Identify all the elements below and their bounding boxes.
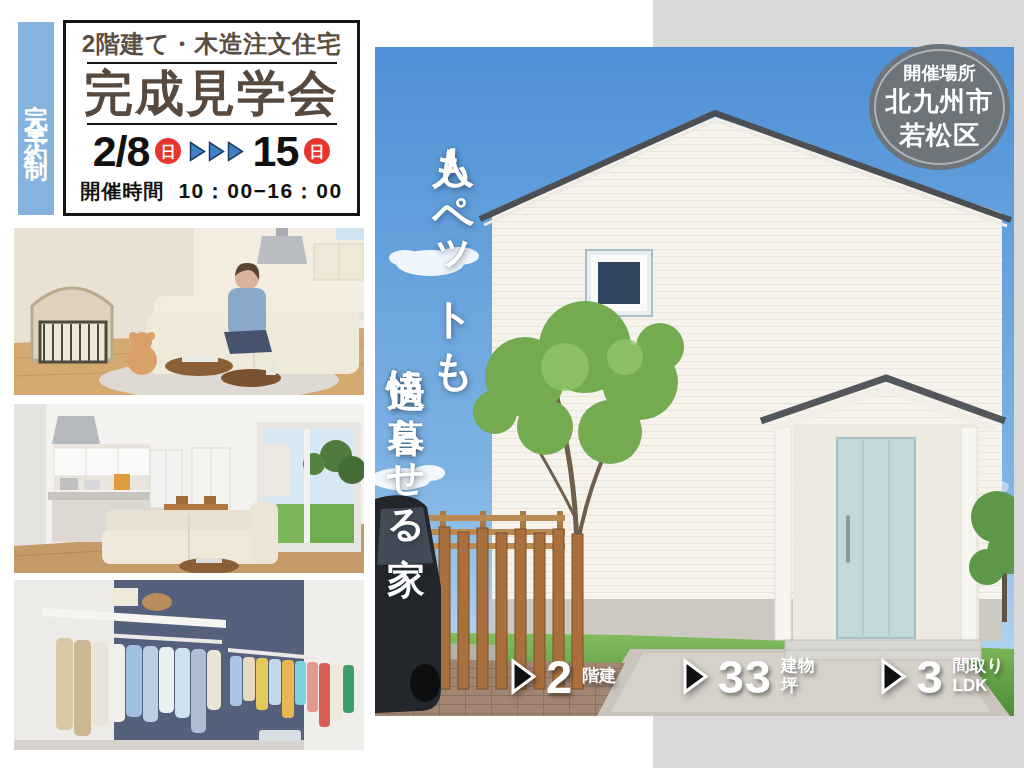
event-time-row: 開催時間 10：00−16：00 bbox=[80, 177, 342, 205]
play-triangle-icon bbox=[510, 658, 537, 695]
front-door bbox=[837, 438, 915, 638]
door-handle bbox=[846, 515, 850, 563]
ldk-photo bbox=[14, 404, 364, 573]
spec-area-unit2: 坪 bbox=[781, 676, 815, 696]
play-triangle-icon bbox=[880, 658, 907, 695]
date-start: 2/8 bbox=[93, 130, 150, 173]
event-info-box: 2階建て・木造注文住宅 完成見学会 2/8 日 15 日 開催時間 10：00−… bbox=[63, 20, 360, 216]
date-end: 15 bbox=[252, 130, 298, 173]
spec-area-value: 33 bbox=[718, 653, 772, 700]
folded-linens bbox=[259, 730, 301, 742]
play-triangle-icon bbox=[682, 658, 709, 695]
divider bbox=[87, 123, 337, 125]
spec-floors-unit: 階建 bbox=[582, 666, 616, 686]
event-title: 完成見学会 bbox=[84, 68, 339, 119]
sunday-badge: 日 bbox=[304, 138, 330, 164]
pet-nook bbox=[32, 288, 112, 362]
spec-layout-unit1: 間取り bbox=[953, 656, 1004, 676]
venue-label: 開催場所 bbox=[904, 61, 976, 85]
catch-copy-line1: 人もペットも bbox=[432, 115, 474, 372]
spec-layout-value: 3 bbox=[916, 653, 943, 700]
spec-bar: 2 階建 33 建物 坪 3 bbox=[510, 645, 1004, 707]
catch-copy-line2: 快適に暮らせる家 bbox=[387, 339, 425, 528]
venue-badge: 開催場所 北九州市 若松区 bbox=[869, 44, 1010, 170]
spec-area-unit1: 建物 bbox=[781, 656, 815, 676]
event-subtitle: 2階建て・木造注文住宅 bbox=[82, 31, 341, 57]
time-label: 開催時間 bbox=[80, 178, 164, 205]
spec-layout-unit2: LDK bbox=[953, 676, 1004, 696]
living-room-photo bbox=[14, 228, 364, 395]
spec-floors-value: 2 bbox=[546, 653, 573, 700]
spec-layout: 3 間取り LDK bbox=[880, 653, 1004, 700]
venue-city: 北九州市 bbox=[886, 85, 994, 119]
time-value: 10：00−16：00 bbox=[178, 177, 342, 205]
divider bbox=[87, 62, 337, 64]
l-shaped-sofa bbox=[102, 502, 278, 564]
event-date-row: 2/8 日 15 日 bbox=[93, 130, 331, 173]
reservation-label: 完全予約制 bbox=[24, 86, 48, 151]
closet-photo bbox=[14, 580, 364, 750]
spec-floors: 2 階建 bbox=[510, 653, 616, 700]
reservation-banner: 完全予約制 bbox=[18, 22, 54, 215]
dog bbox=[127, 332, 157, 375]
flyer-canvas: 人もペットも 快適に暮らせる家 2 階建 33 建物 bbox=[0, 0, 1024, 768]
spec-area: 33 建物 坪 bbox=[682, 653, 815, 700]
venue-ward: 若松区 bbox=[899, 119, 980, 153]
sunday-badge: 日 bbox=[155, 138, 181, 164]
triple-play-triangle-icon bbox=[189, 141, 244, 162]
